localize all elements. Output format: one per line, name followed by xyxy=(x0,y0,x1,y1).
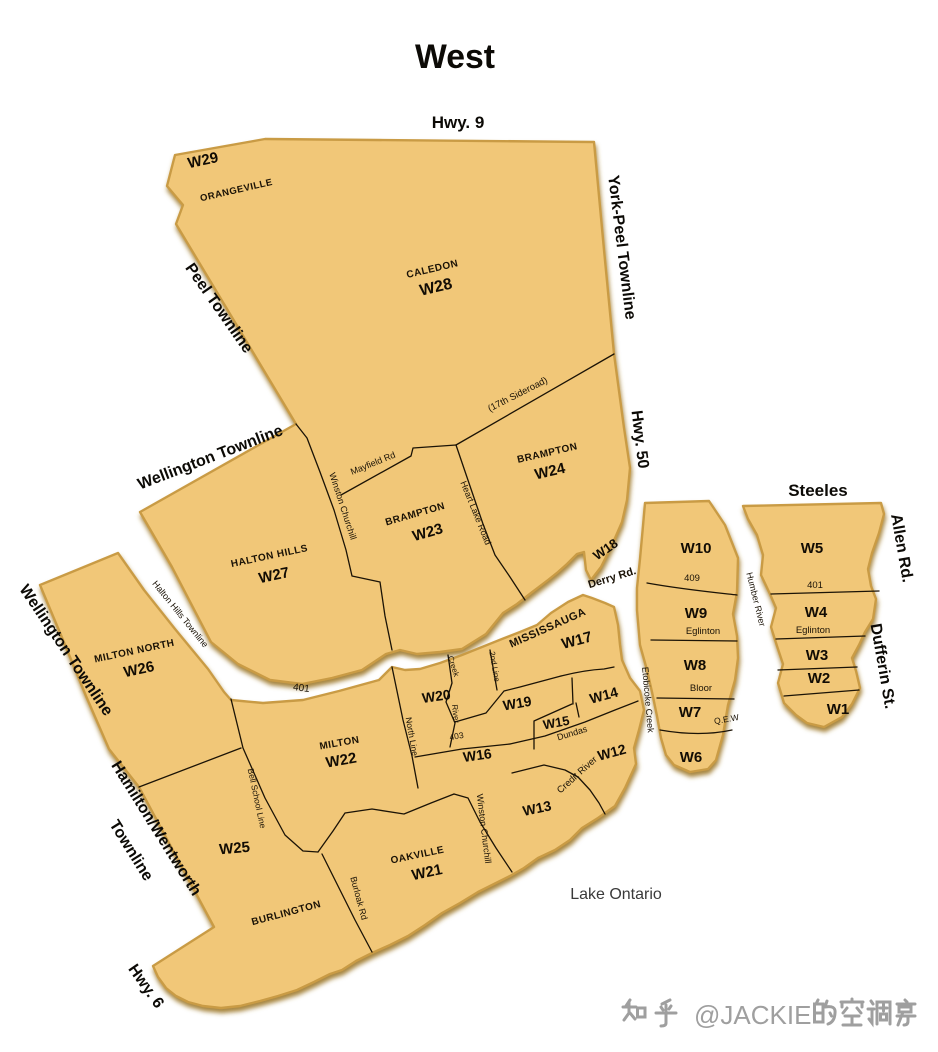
svg-text:W1: W1 xyxy=(827,701,850,718)
svg-text:W25: W25 xyxy=(219,839,251,859)
svg-text:W8: W8 xyxy=(684,657,707,674)
svg-text:Steeles: Steeles xyxy=(788,481,848,500)
svg-text:W5: W5 xyxy=(801,540,824,557)
svg-text:Eglinton: Eglinton xyxy=(796,625,830,636)
svg-text:Lake Ontario: Lake Ontario xyxy=(570,886,662,903)
svg-text:@JACKIE: @JACKIE xyxy=(694,1000,811,1030)
svg-text:W9: W9 xyxy=(685,605,708,622)
svg-text:W2: W2 xyxy=(808,670,831,687)
svg-text:Bloor: Bloor xyxy=(690,683,712,694)
svg-text:W7: W7 xyxy=(679,704,702,721)
svg-text:W3: W3 xyxy=(806,647,829,664)
svg-text:Hwy. 9: Hwy. 9 xyxy=(432,113,485,132)
svg-text:409: 409 xyxy=(684,573,700,584)
svg-text:401: 401 xyxy=(807,580,823,591)
svg-text:West: West xyxy=(415,38,495,76)
svg-text:W6: W6 xyxy=(680,749,703,766)
svg-text:401: 401 xyxy=(292,682,310,695)
svg-text:Eglinton: Eglinton xyxy=(686,626,720,637)
svg-text:W10: W10 xyxy=(681,540,712,557)
svg-text:W4: W4 xyxy=(805,604,828,621)
